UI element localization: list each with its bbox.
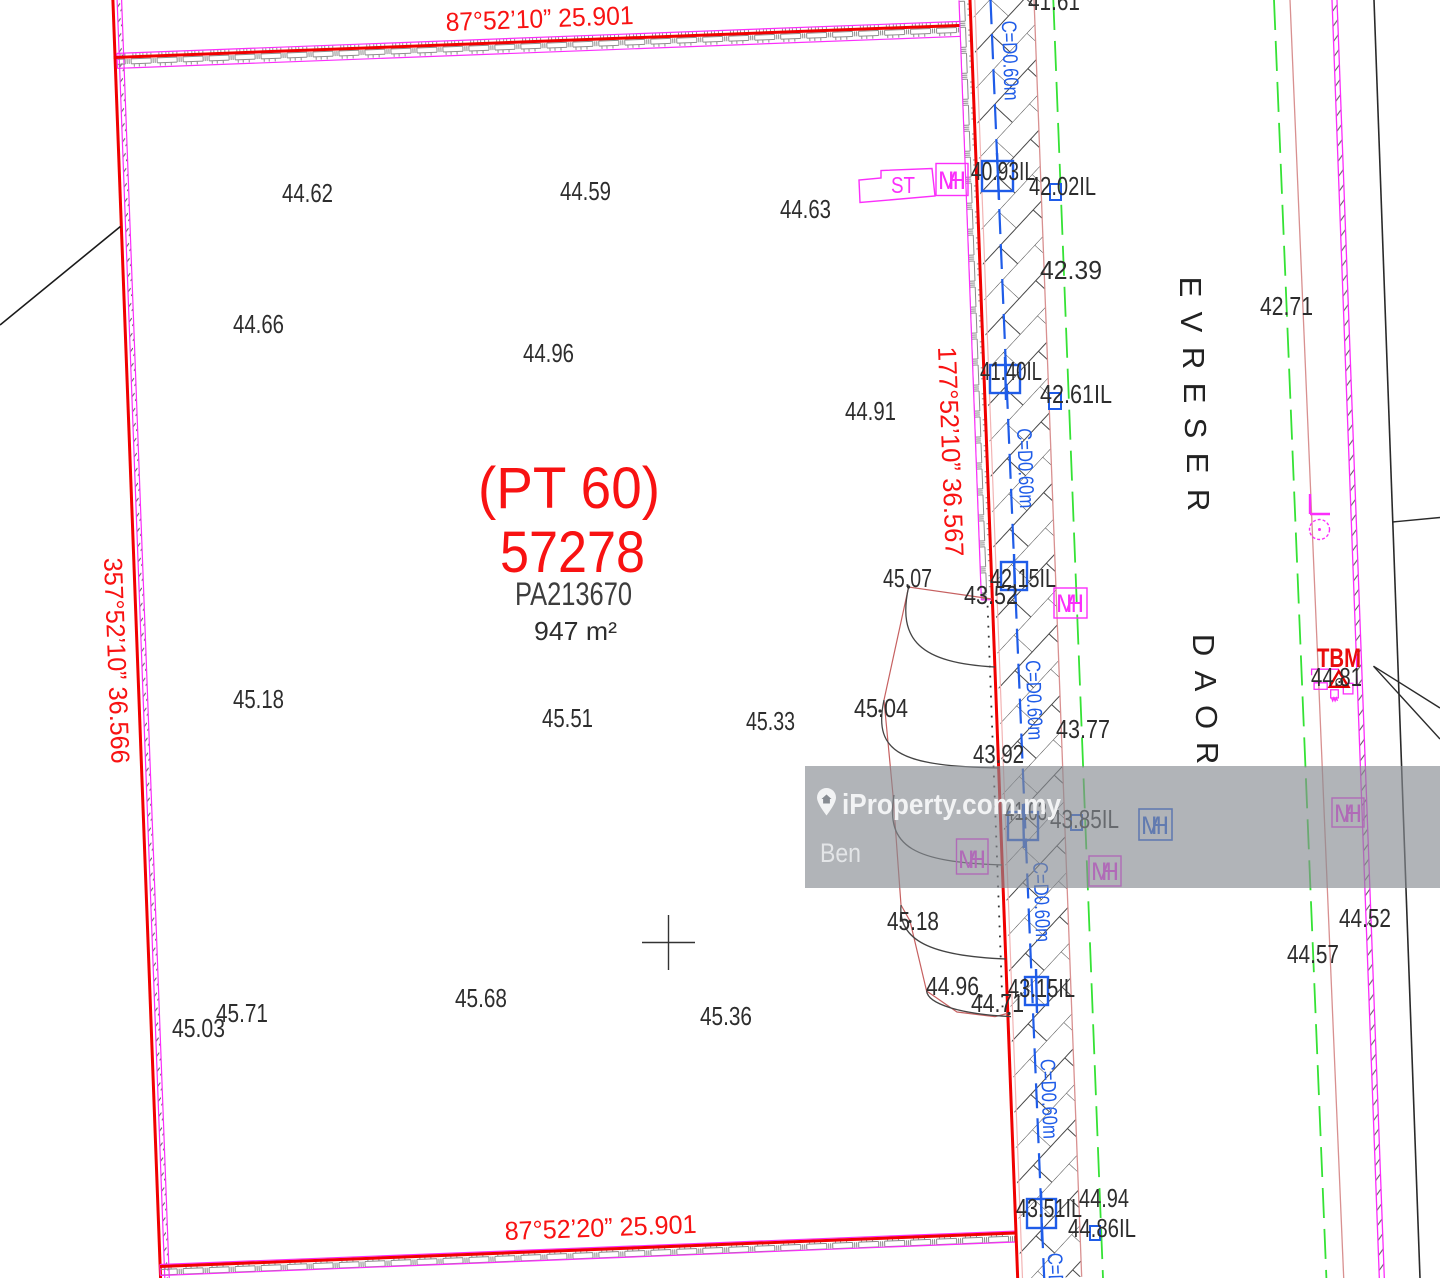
svg-text:42.61IL: 42.61IL: [1040, 379, 1112, 409]
svg-text:R: R: [1181, 489, 1216, 511]
svg-text:947 m²: 947 m²: [534, 616, 617, 646]
svg-text:44.86IL: 44.86IL: [1068, 1213, 1136, 1243]
svg-text:44.57: 44.57: [1287, 939, 1339, 969]
svg-text:iProperty.com.my: iProperty.com.my: [842, 789, 1061, 821]
svg-text:C=D0.60m: C=D0.60m: [1021, 660, 1047, 741]
svg-text:C=D0.60m: C=D0.60m: [1012, 428, 1038, 509]
svg-text:E: E: [1177, 383, 1212, 404]
svg-text:45.07: 45.07: [883, 563, 932, 593]
svg-text:C=D0.60m: C=D0.60m: [1043, 1252, 1069, 1278]
svg-text:45.18: 45.18: [887, 906, 939, 936]
svg-text:45.51: 45.51: [542, 703, 593, 733]
svg-text:45.33: 45.33: [746, 706, 795, 736]
svg-text:44.96: 44.96: [523, 338, 574, 368]
svg-text:45.03: 45.03: [172, 1013, 225, 1043]
svg-text:44.63: 44.63: [780, 194, 831, 224]
svg-text:ST: ST: [891, 172, 915, 198]
svg-text:E: E: [1180, 453, 1215, 474]
svg-text:44.81: 44.81: [1311, 662, 1362, 692]
svg-text:41.40IL: 41.40IL: [980, 356, 1042, 386]
svg-text:44.66: 44.66: [233, 309, 284, 339]
svg-text:41.61: 41.61: [1028, 0, 1080, 16]
svg-text:D: D: [1186, 634, 1221, 656]
svg-text:45.36: 45.36: [700, 1001, 752, 1031]
svg-text:44.59: 44.59: [560, 176, 611, 206]
svg-text:O: O: [1189, 705, 1224, 729]
svg-text:R: R: [1190, 742, 1225, 764]
svg-text:C=D0.60m: C=D0.60m: [997, 20, 1023, 101]
svg-text:40.93IL: 40.93IL: [971, 156, 1035, 186]
svg-text:R: R: [1176, 347, 1211, 369]
svg-text:PA213670: PA213670: [515, 576, 632, 612]
svg-text:C=D0.60m: C=D0.60m: [1036, 1058, 1062, 1139]
svg-text:45.68: 45.68: [455, 983, 507, 1013]
svg-text:43.77: 43.77: [1056, 714, 1110, 744]
svg-text:MH: MH: [1056, 590, 1084, 618]
svg-text:(PT 60): (PT 60): [478, 456, 660, 521]
svg-text:Ben: Ben: [820, 838, 861, 868]
svg-text:43.15IL: 43.15IL: [1008, 973, 1075, 1003]
svg-text:V: V: [1174, 312, 1209, 333]
svg-text:44.91: 44.91: [845, 396, 896, 426]
svg-text:E: E: [1173, 277, 1208, 298]
svg-text:43.92: 43.92: [973, 739, 1024, 769]
svg-text:MH: MH: [938, 167, 966, 195]
svg-text:42.15IL: 42.15IL: [990, 563, 1056, 593]
svg-text:42.71: 42.71: [1260, 291, 1313, 321]
svg-text:44.62: 44.62: [282, 178, 333, 208]
svg-text:45.04: 45.04: [854, 693, 908, 723]
svg-text:45.18: 45.18: [233, 684, 284, 714]
svg-text:42.02IL: 42.02IL: [1029, 171, 1096, 201]
svg-text:S: S: [1178, 418, 1213, 439]
svg-text:42.39: 42.39: [1040, 255, 1102, 285]
svg-text:44.94: 44.94: [1079, 1183, 1129, 1213]
svg-text:44.52: 44.52: [1339, 903, 1391, 933]
svg-text:A: A: [1188, 671, 1223, 692]
